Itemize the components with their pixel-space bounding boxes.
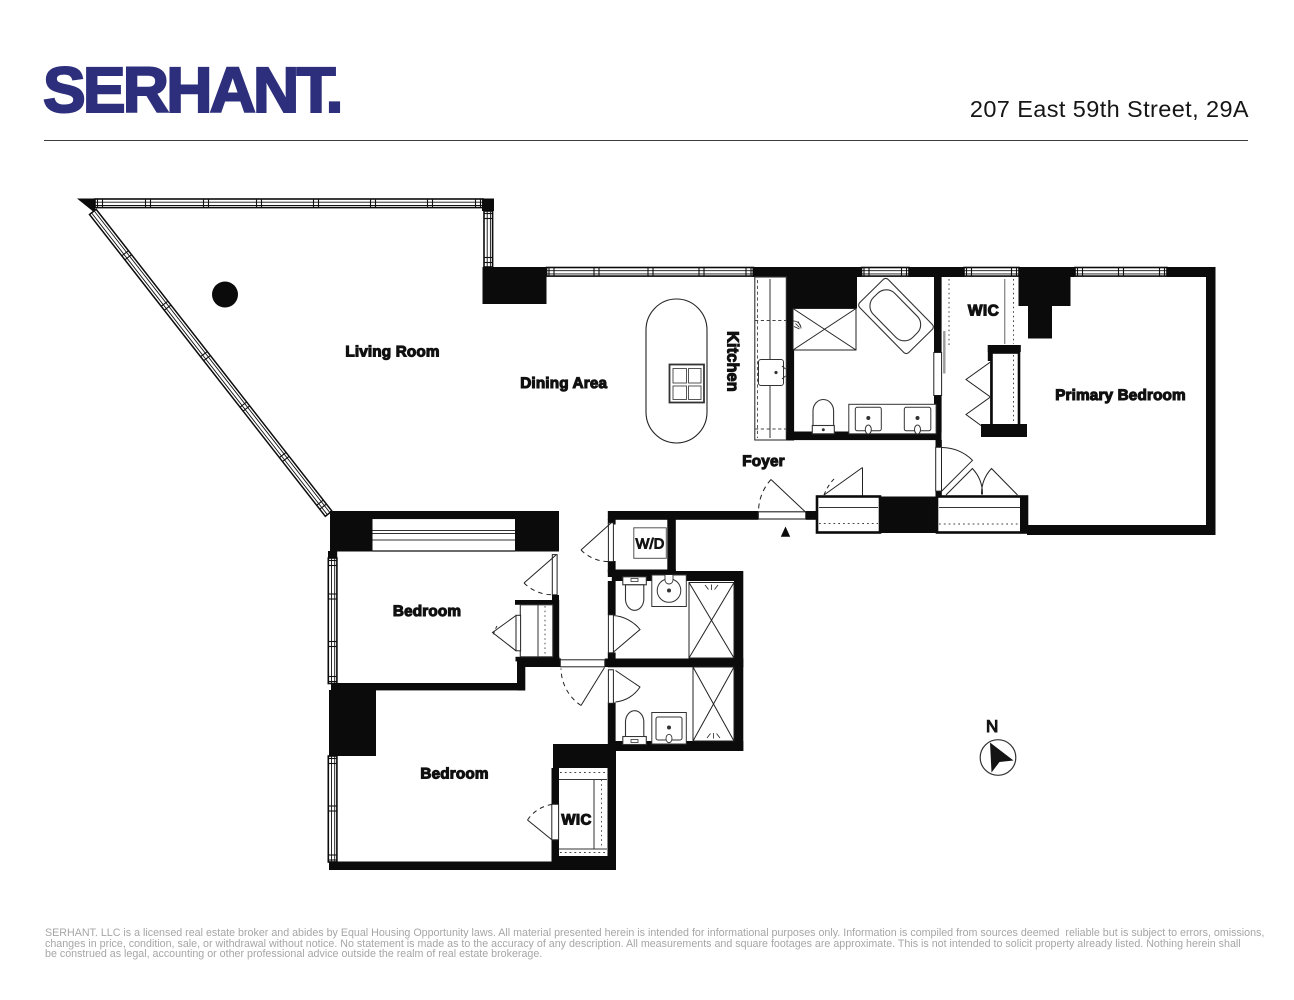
svg-text:WIC: WIC xyxy=(561,812,591,829)
svg-text:Bedroom: Bedroom xyxy=(393,603,461,620)
svg-text:WIC: WIC xyxy=(968,303,999,320)
svg-text:Bedroom: Bedroom xyxy=(420,766,488,783)
svg-text:Foyer: Foyer xyxy=(742,453,784,470)
svg-text:W/D: W/D xyxy=(636,537,665,553)
svg-text:Kitchen: Kitchen xyxy=(724,331,742,392)
svg-text:N: N xyxy=(986,717,998,736)
svg-text:Dining Area: Dining Area xyxy=(520,375,607,392)
svg-text:Living Room: Living Room xyxy=(345,344,439,361)
svg-text:Primary Bedroom: Primary Bedroom xyxy=(1055,387,1186,404)
